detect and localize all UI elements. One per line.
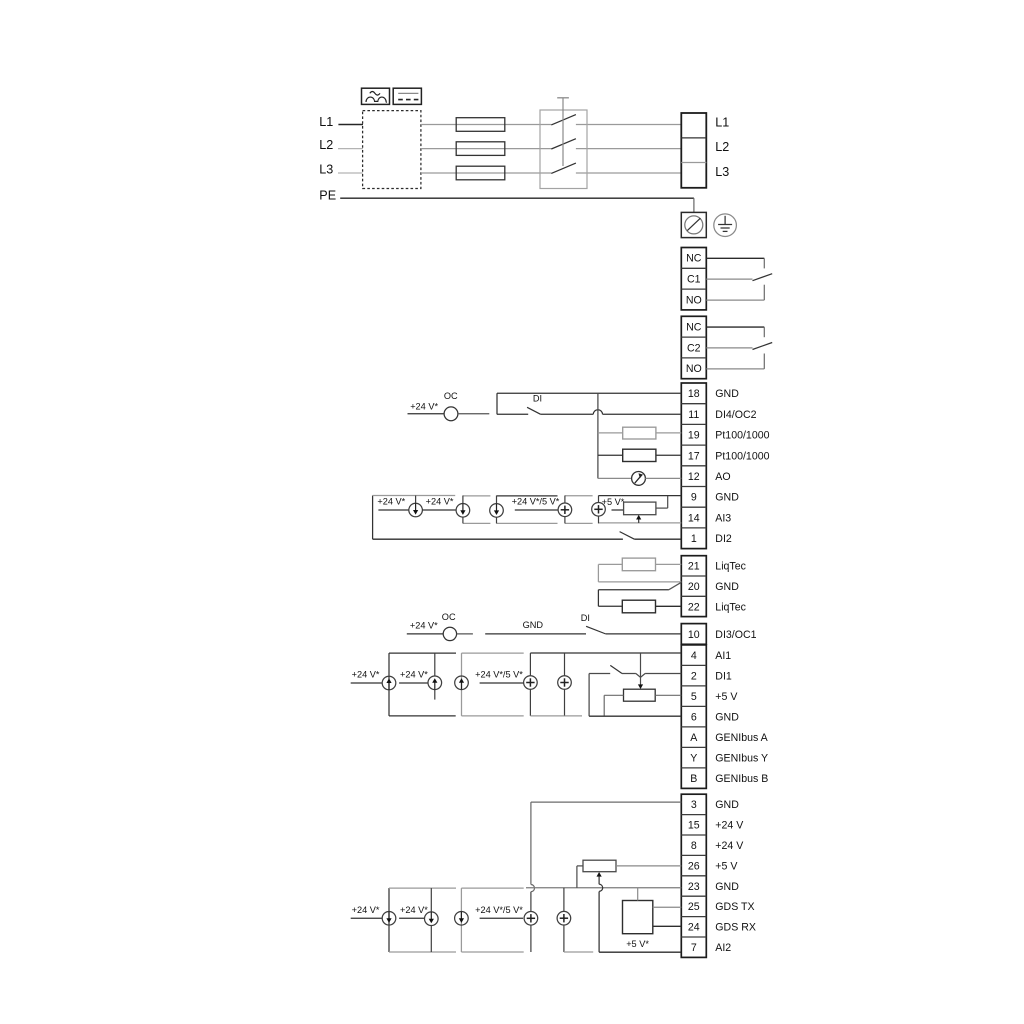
svg-text:GENIbus A: GENIbus A (715, 732, 768, 744)
svg-text:+24 V*: +24 V* (400, 905, 428, 915)
svg-text:GENIbus B: GENIbus B (715, 773, 768, 785)
svg-text:Y: Y (690, 752, 697, 764)
svg-text:L2: L2 (319, 138, 333, 152)
svg-text:GND: GND (715, 492, 739, 504)
svg-text:AI3: AI3 (715, 512, 731, 524)
svg-text:L3: L3 (715, 165, 729, 179)
svg-text:+5 V: +5 V (715, 860, 738, 872)
svg-text:+24 V*: +24 V* (352, 670, 380, 680)
svg-text:DI3/OC1: DI3/OC1 (715, 629, 756, 641)
svg-text:+24 V*: +24 V* (410, 401, 438, 411)
svg-text:+5 V*: +5 V* (602, 497, 625, 507)
svg-text:C2: C2 (687, 342, 701, 354)
svg-text:L3: L3 (319, 163, 333, 177)
svg-text:B: B (690, 773, 697, 785)
svg-text:3: 3 (691, 799, 697, 811)
svg-text:DI4/OC2: DI4/OC2 (715, 409, 756, 421)
svg-text:21: 21 (688, 561, 700, 573)
svg-text:AI1: AI1 (715, 650, 731, 662)
svg-text:NC: NC (686, 253, 702, 265)
svg-text:GND: GND (715, 711, 739, 723)
svg-text:+24 V*: +24 V* (410, 621, 438, 631)
svg-text:+24 V*/5 V*: +24 V*/5 V* (475, 905, 523, 915)
svg-text:L1: L1 (319, 115, 333, 129)
svg-text:6: 6 (691, 711, 697, 723)
svg-text:NC: NC (686, 322, 702, 334)
svg-text:11: 11 (688, 409, 699, 421)
svg-text:NO: NO (686, 363, 702, 375)
svg-text:18: 18 (688, 388, 700, 400)
svg-text:GND: GND (523, 620, 544, 630)
svg-text:OC: OC (442, 612, 456, 622)
svg-text:C1: C1 (687, 274, 701, 286)
svg-text:+24 V: +24 V (715, 820, 744, 832)
svg-text:GDS TX: GDS TX (715, 901, 754, 913)
svg-text:DI1: DI1 (715, 670, 732, 682)
svg-text:8: 8 (691, 840, 697, 852)
svg-text:26: 26 (688, 860, 700, 872)
svg-text:+24 V*: +24 V* (426, 496, 454, 506)
svg-text:PE: PE (319, 189, 336, 203)
svg-text:GND: GND (715, 799, 739, 811)
svg-text:7: 7 (691, 942, 697, 954)
svg-text:GND: GND (715, 581, 739, 593)
svg-text:+5 V*: +5 V* (626, 939, 649, 949)
svg-text:NO: NO (686, 294, 702, 306)
svg-text:20: 20 (688, 581, 700, 593)
svg-text:24: 24 (688, 922, 700, 934)
svg-text:A: A (690, 732, 698, 744)
svg-text:Pt100/1000: Pt100/1000 (715, 450, 769, 462)
svg-text:L1: L1 (715, 115, 729, 129)
svg-text:19: 19 (688, 430, 700, 442)
svg-text:DI2: DI2 (715, 533, 732, 545)
svg-text:5: 5 (691, 691, 697, 703)
svg-text:AO: AO (715, 471, 730, 483)
svg-text:+24 V*: +24 V* (352, 905, 380, 915)
svg-text:+5 V: +5 V (715, 691, 738, 703)
svg-text:22: 22 (688, 601, 700, 613)
svg-text:GND: GND (715, 881, 739, 893)
svg-text:GDS RX: GDS RX (715, 922, 756, 934)
svg-text:+24 V*: +24 V* (377, 496, 405, 506)
svg-text:LiqTec: LiqTec (715, 561, 746, 573)
svg-text:GND: GND (715, 388, 739, 400)
svg-text:LiqTec: LiqTec (715, 601, 746, 613)
svg-text:OC: OC (444, 391, 458, 401)
svg-text:17: 17 (688, 450, 700, 462)
svg-text:+24 V*/5 V*: +24 V*/5 V* (512, 496, 560, 506)
svg-text:1: 1 (691, 533, 697, 545)
svg-text:+24 V: +24 V (715, 840, 744, 852)
svg-text:+24 V*/5 V*: +24 V*/5 V* (475, 670, 523, 680)
svg-text:Pt100/1000: Pt100/1000 (715, 430, 769, 442)
svg-text:DI: DI (533, 394, 542, 404)
svg-text:AI2: AI2 (715, 942, 731, 954)
svg-text:10: 10 (688, 629, 700, 641)
svg-text:9: 9 (691, 492, 697, 504)
svg-text:14: 14 (688, 512, 700, 524)
svg-text:15: 15 (688, 820, 700, 832)
svg-text:4: 4 (691, 650, 697, 662)
svg-text:L2: L2 (715, 140, 729, 154)
svg-text:12: 12 (688, 471, 700, 483)
svg-text:+24 V*: +24 V* (400, 670, 428, 680)
svg-text:GENIbus Y: GENIbus Y (715, 752, 768, 764)
svg-text:2: 2 (691, 670, 697, 682)
svg-text:25: 25 (688, 901, 700, 913)
svg-text:23: 23 (688, 881, 700, 893)
svg-text:DI: DI (581, 613, 590, 623)
